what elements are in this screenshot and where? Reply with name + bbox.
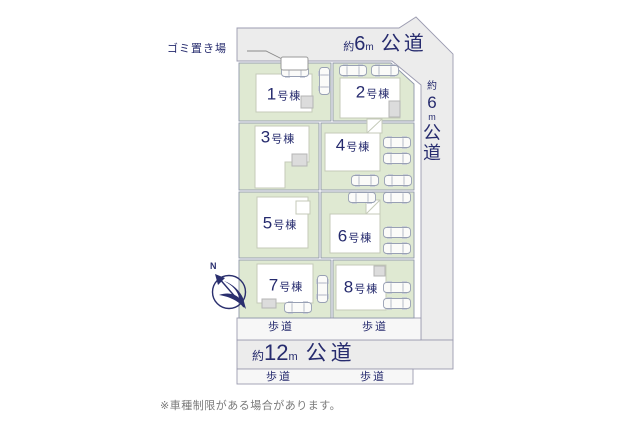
car-icon bbox=[349, 191, 376, 204]
car-icon bbox=[318, 68, 331, 95]
road-right-char: m bbox=[428, 113, 436, 122]
road-bottom-width: 12 bbox=[264, 342, 288, 364]
sidewalk-lower bbox=[237, 369, 413, 384]
lot-number: 2 bbox=[356, 84, 365, 101]
building-7-porch bbox=[262, 299, 276, 308]
road-right-char: 6 bbox=[427, 94, 436, 111]
lot-7-label: 7号棟 bbox=[269, 277, 303, 294]
building-8-porch bbox=[374, 266, 385, 276]
lot-number: 4 bbox=[336, 137, 345, 154]
lot-4-label: 4号棟 bbox=[336, 137, 370, 154]
lot-suffix: 号棟 bbox=[273, 221, 297, 232]
lot-number: 7 bbox=[269, 277, 278, 294]
car-icon bbox=[384, 152, 411, 165]
lot-suffix: 号棟 bbox=[366, 90, 390, 101]
sidewalk-label: 歩道 bbox=[362, 322, 388, 333]
road-top-name: 公道 bbox=[381, 34, 427, 54]
lot-5-label: 5号棟 bbox=[263, 215, 297, 232]
sidewalk-label: 歩道 bbox=[360, 372, 386, 383]
sidewalk-label: 歩道 bbox=[268, 322, 294, 333]
lot-suffix: 号棟 bbox=[354, 285, 378, 296]
sidewalk-label: 歩道 bbox=[266, 372, 292, 383]
lot-suffix: 号棟 bbox=[277, 92, 301, 103]
road-bottom-unit: m bbox=[289, 352, 298, 363]
lot-1-label: 1号棟 bbox=[267, 86, 301, 103]
lot-6-label: 6号棟 bbox=[338, 228, 372, 245]
road-right-char: 道 bbox=[423, 144, 441, 162]
car-icon bbox=[352, 174, 379, 187]
car-icon bbox=[285, 301, 312, 314]
lot-number: 8 bbox=[344, 279, 353, 296]
lot-3-label: 3号棟 bbox=[261, 129, 295, 146]
car-icon bbox=[340, 64, 367, 77]
footnote: ※車種制限がある場合があります。 bbox=[160, 397, 341, 413]
road-right-label: 約 6 m 公 道 bbox=[420, 82, 444, 162]
car-icon bbox=[372, 64, 399, 77]
road-top-unit: m bbox=[365, 43, 373, 53]
building-1-porch bbox=[301, 96, 313, 108]
road-bottom-name: 公道 bbox=[306, 343, 356, 364]
car-icon bbox=[316, 276, 329, 303]
garbage-box bbox=[281, 57, 308, 70]
car-icon bbox=[384, 191, 411, 204]
road-bottom-approx: 約 bbox=[252, 350, 264, 362]
lot-suffix: 号棟 bbox=[271, 135, 295, 146]
car-icon bbox=[384, 281, 411, 294]
road-top-approx: 約 bbox=[343, 42, 354, 53]
building-3-porch bbox=[292, 154, 307, 166]
car-icon bbox=[384, 136, 411, 149]
lot-number: 1 bbox=[267, 86, 276, 103]
lot-suffix: 号棟 bbox=[279, 283, 303, 294]
road-right-char: 公 bbox=[423, 124, 441, 142]
lot-number: 5 bbox=[263, 215, 272, 232]
road-top-width: 6 bbox=[354, 34, 365, 54]
car-icon bbox=[385, 174, 412, 187]
lot-suffix: 号棟 bbox=[348, 234, 372, 245]
lot-suffix: 号棟 bbox=[346, 143, 370, 154]
building-2-porch bbox=[389, 101, 400, 117]
lot-number: 6 bbox=[338, 228, 347, 245]
car-icon bbox=[384, 242, 411, 255]
compass-north-label: N bbox=[210, 262, 217, 271]
sidewalk-upper bbox=[237, 318, 421, 340]
car-icon bbox=[384, 297, 411, 310]
road-right-char: 約 bbox=[427, 82, 437, 92]
lot-2-label: 2号棟 bbox=[356, 84, 390, 101]
site-plan: ゴミ置き場 約 6 m 公道 約 6 m 公 道 約 12 m 公道 歩道 歩道… bbox=[0, 0, 640, 426]
garbage-area-label: ゴミ置き場 bbox=[167, 44, 227, 55]
road-bottom-label: 約 12 m 公道 bbox=[252, 342, 356, 364]
road-top-label: 約 6 m 公道 bbox=[343, 34, 426, 54]
building-5-porch bbox=[296, 201, 310, 214]
lot-8-label: 8号棟 bbox=[344, 279, 378, 296]
car-icon bbox=[384, 226, 411, 239]
lot-number: 3 bbox=[261, 129, 270, 146]
